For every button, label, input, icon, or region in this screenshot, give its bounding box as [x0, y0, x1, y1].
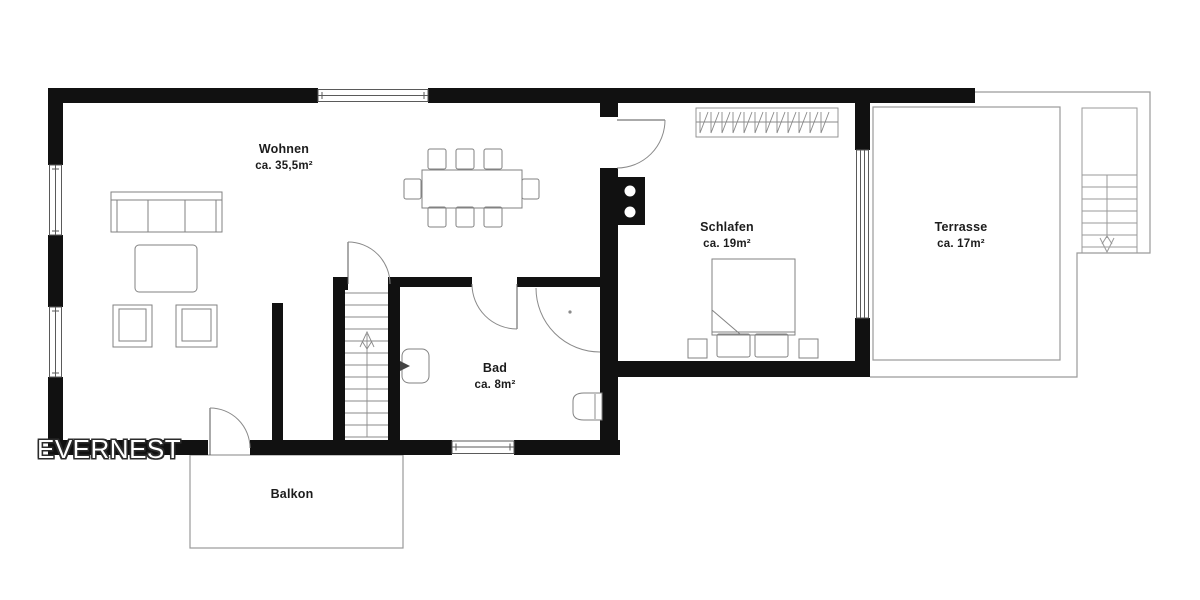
room-name: Schlafen	[700, 220, 754, 234]
ceiling-point	[568, 310, 571, 313]
room-label-wohnen: Wohnen ca. 35,5m²	[214, 140, 354, 175]
wardrobe	[696, 108, 838, 137]
interior-stairs	[345, 293, 388, 437]
room-area: ca. 8m²	[435, 377, 555, 394]
armchair	[176, 305, 217, 347]
room-label-schlafen: Schlafen ca. 19m²	[657, 218, 797, 253]
toilet	[573, 393, 602, 420]
chimney	[617, 177, 645, 225]
window-bedroom-terrace	[857, 150, 869, 318]
nightstand	[688, 339, 707, 358]
armchair	[113, 305, 152, 347]
door-bath	[472, 284, 517, 329]
sink	[400, 349, 429, 383]
door-hall	[348, 242, 390, 284]
coffee-table	[135, 245, 197, 292]
floorplan-page: Wohnen ca. 35,5m² Schlafen ca. 19m² Terr…	[0, 0, 1200, 600]
window-top	[318, 90, 428, 102]
room-area: ca. 35,5m²	[214, 158, 354, 175]
exterior-stairs	[1082, 108, 1137, 253]
nightstand	[799, 339, 818, 358]
pillow	[717, 334, 750, 357]
blanket-fold	[712, 310, 740, 334]
floorplan-drawing	[0, 0, 1200, 600]
windows	[50, 90, 869, 454]
bed	[688, 259, 818, 358]
sofa	[111, 192, 222, 232]
stairs-down-arrow-icon	[1100, 236, 1114, 252]
window-left-upper	[50, 165, 62, 235]
room-area: ca. 19m²	[657, 236, 797, 253]
door-balcony	[210, 408, 250, 455]
walls	[48, 88, 975, 455]
room-label-balkon: Balkon	[222, 485, 362, 503]
door-bedroom	[617, 120, 665, 168]
room-area: ca. 17m²	[891, 236, 1031, 253]
pillow	[755, 334, 788, 357]
room-name: Wohnen	[259, 142, 309, 156]
hanger-marks	[700, 112, 829, 133]
window-left-lower	[50, 307, 62, 377]
door-bath-corner	[536, 288, 600, 352]
room-name: Terrasse	[935, 220, 988, 234]
room-name: Bad	[483, 361, 507, 375]
room-name: Balkon	[271, 487, 314, 501]
room-label-terrasse: Terrasse ca. 17m²	[891, 218, 1031, 253]
window-bath	[452, 441, 514, 454]
dining-table	[422, 170, 522, 208]
brand-watermark: EVERNEST	[37, 434, 181, 465]
dining-chairs	[404, 149, 539, 227]
room-label-bad: Bad ca. 8m²	[435, 359, 555, 394]
